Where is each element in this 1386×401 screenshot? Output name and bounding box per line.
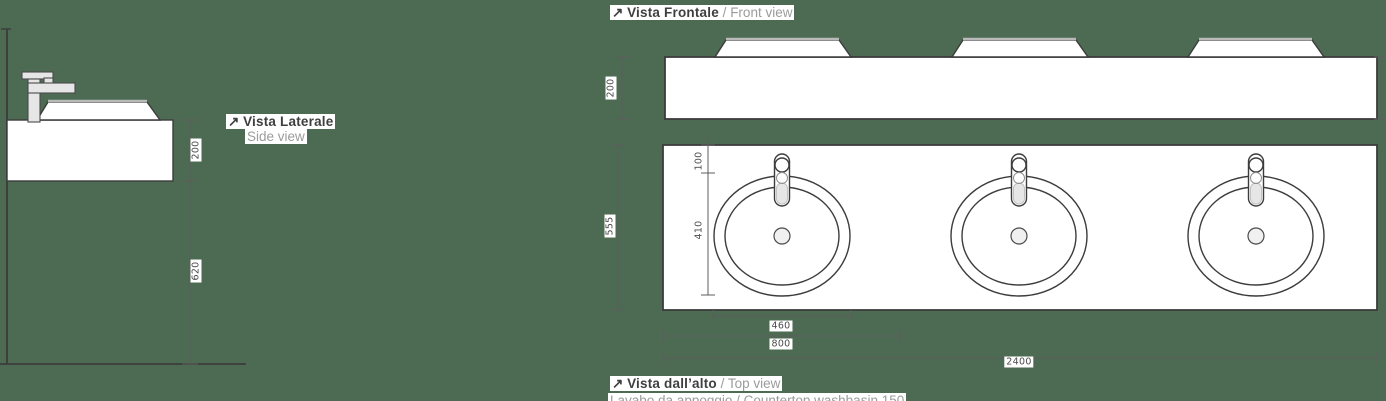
drain-2: [1011, 228, 1027, 244]
drain-1: [774, 228, 790, 244]
side-view-title-en: Side view: [247, 129, 305, 144]
front-view-label: ↗ Vista Frontale / Front view: [610, 5, 794, 20]
front-view-title-it: Vista Frontale: [627, 5, 719, 20]
dim-side-floor-clearance: 620: [191, 259, 202, 282]
ne-arrow-icon: ↗: [228, 114, 239, 129]
dim-top-basin-length: 410: [694, 218, 705, 241]
basin-bump-1: [715, 40, 851, 57]
dim-front-cabinet-height: 200: [606, 76, 617, 99]
dim-top-depth: 555: [605, 214, 616, 237]
dim-top-total-width: 2400: [1004, 357, 1033, 368]
basin-bump-2: [952, 40, 1088, 57]
faucet-1-spout: [777, 183, 788, 204]
dim-top-faucet-offset: 100: [694, 149, 705, 172]
label-separator: /: [717, 376, 728, 391]
faucet-3-cap: [1249, 158, 1263, 172]
faucet-2-spout: [1014, 183, 1025, 204]
basin-side-profile: [37, 102, 160, 120]
ne-arrow-icon: ↗: [612, 5, 623, 20]
technical-drawing-canvas: ↗ Vista Frontale / Front view ↗ Vista La…: [0, 0, 1386, 401]
drawing-svg: [0, 0, 1386, 401]
label-separator: /: [719, 5, 730, 20]
side-view: [0, 29, 246, 364]
dim-top-basin-width: 460: [769, 321, 792, 332]
faucet-1-cap: [775, 158, 789, 172]
caption-truncated-text: Lavabo da appoggio / Countertop washbasi…: [608, 393, 906, 401]
faucet-3-spout: [1251, 183, 1262, 204]
side-view-title-it: Vista Laterale: [243, 114, 333, 129]
front-view: [615, 39, 1386, 119]
ne-arrow-icon: ↗: [612, 376, 623, 391]
cabinet-side-outline: [7, 120, 173, 181]
top-view: [611, 138, 1377, 364]
top-view-label: ↗ Vista dall’alto / Top view: [610, 376, 782, 391]
caption-truncated-line: Lavabo da appoggio / Countertop washbasi…: [608, 393, 928, 401]
top-view-title-it: Vista dall’alto: [627, 376, 717, 391]
basin-bump-3: [1188, 40, 1324, 57]
side-view-label: ↗ Vista Laterale Side view: [226, 114, 335, 144]
dim-side-cabinet-height: 200: [191, 138, 202, 161]
drain-3: [1248, 228, 1264, 244]
dim-top-module-width: 800: [769, 339, 792, 350]
faucet-2-cap: [1012, 158, 1026, 172]
front-view-title-en: Front view: [730, 5, 792, 20]
top-view-title-en: Top view: [728, 376, 781, 391]
cabinet-front-outline: [665, 57, 1377, 119]
faucet-spout: [28, 83, 75, 93]
